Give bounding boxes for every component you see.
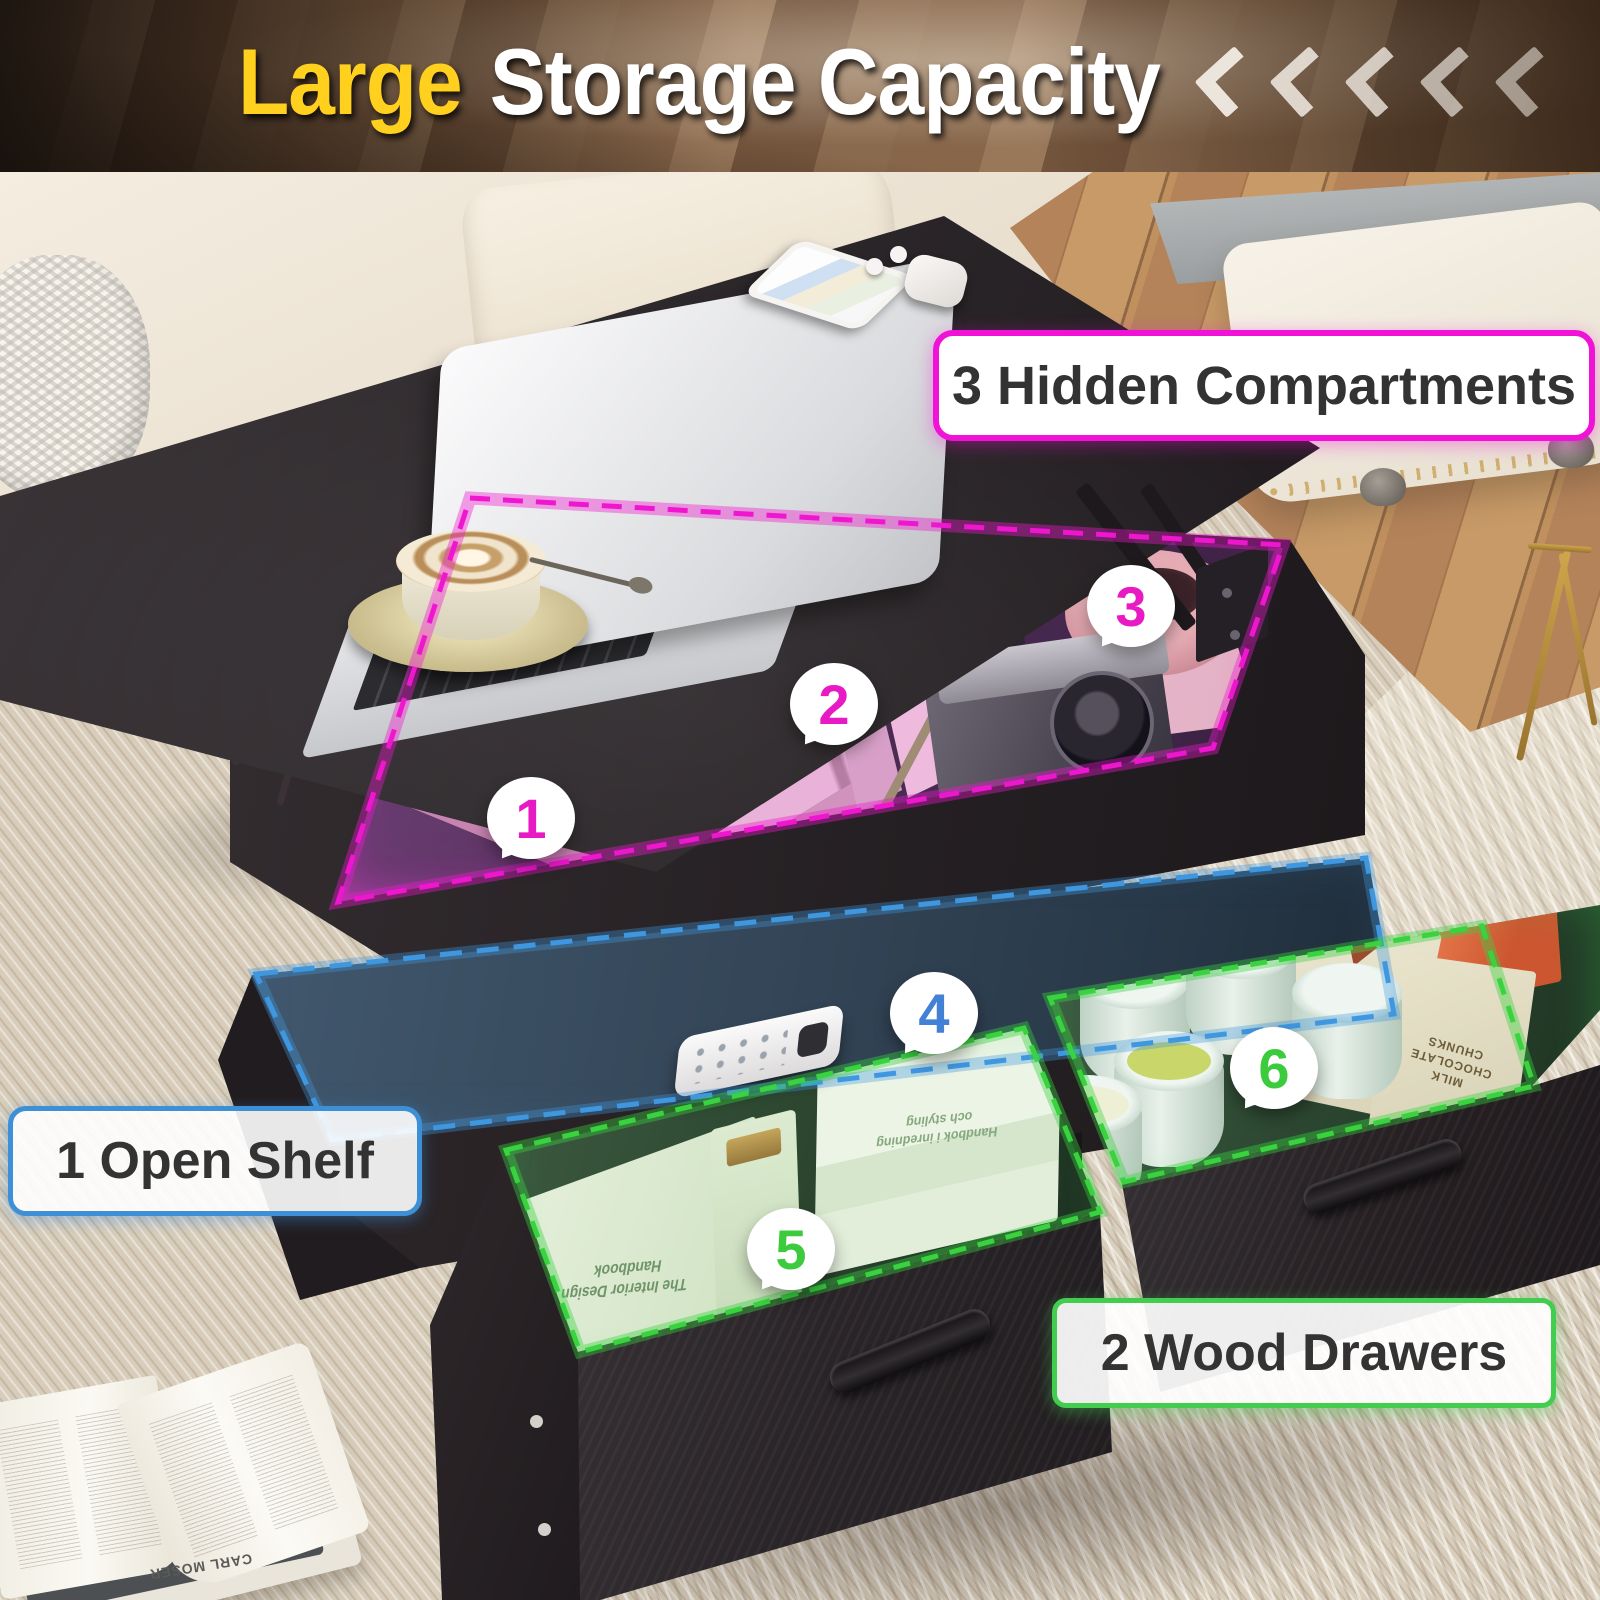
earbud <box>890 246 907 263</box>
banner-title-rest: Storage Capacity <box>490 29 1160 134</box>
marker-1: 1 <box>487 777 575 859</box>
callout-hidden-compartments: 3 Hidden Compartments <box>933 330 1595 441</box>
drawer-handle <box>825 1304 995 1397</box>
product-infographic: CARL MOSER The I <box>0 0 1600 1600</box>
callout-wood-drawers: 2 Wood Drawers <box>1052 1298 1556 1408</box>
latte-art <box>396 530 546 592</box>
chevron-left-icon <box>1494 46 1566 118</box>
drawer-handle <box>1300 1135 1466 1217</box>
ottoman-foot <box>1360 468 1406 506</box>
bracket-bolt <box>1230 630 1240 640</box>
marker-4: 4 <box>890 972 978 1054</box>
earbud <box>866 258 883 275</box>
callout-open-shelf: 1 Open Shelf <box>8 1106 422 1216</box>
banner-title-highlight: Large <box>238 29 462 134</box>
marker-2: 2 <box>790 663 878 745</box>
chevron-row <box>1202 56 1558 107</box>
coffee-cup-group <box>330 540 590 700</box>
marker-6: 6 <box>1230 1027 1318 1109</box>
bracket-bolt <box>1222 588 1232 598</box>
chevron-left-icon <box>1194 46 1266 118</box>
title-banner: LargeStorage Capacity <box>0 0 1600 172</box>
marker-3: 3 <box>1087 565 1175 647</box>
marker-5: 5 <box>747 1208 835 1290</box>
banner-title: LargeStorage Capacity <box>238 28 1160 137</box>
chevron-left-icon <box>1419 46 1491 118</box>
chevron-left-icon <box>1344 46 1416 118</box>
screw <box>538 1523 551 1536</box>
book-text-columns <box>149 1375 340 1561</box>
chevron-left-icon <box>1269 46 1341 118</box>
screw <box>530 1415 543 1428</box>
